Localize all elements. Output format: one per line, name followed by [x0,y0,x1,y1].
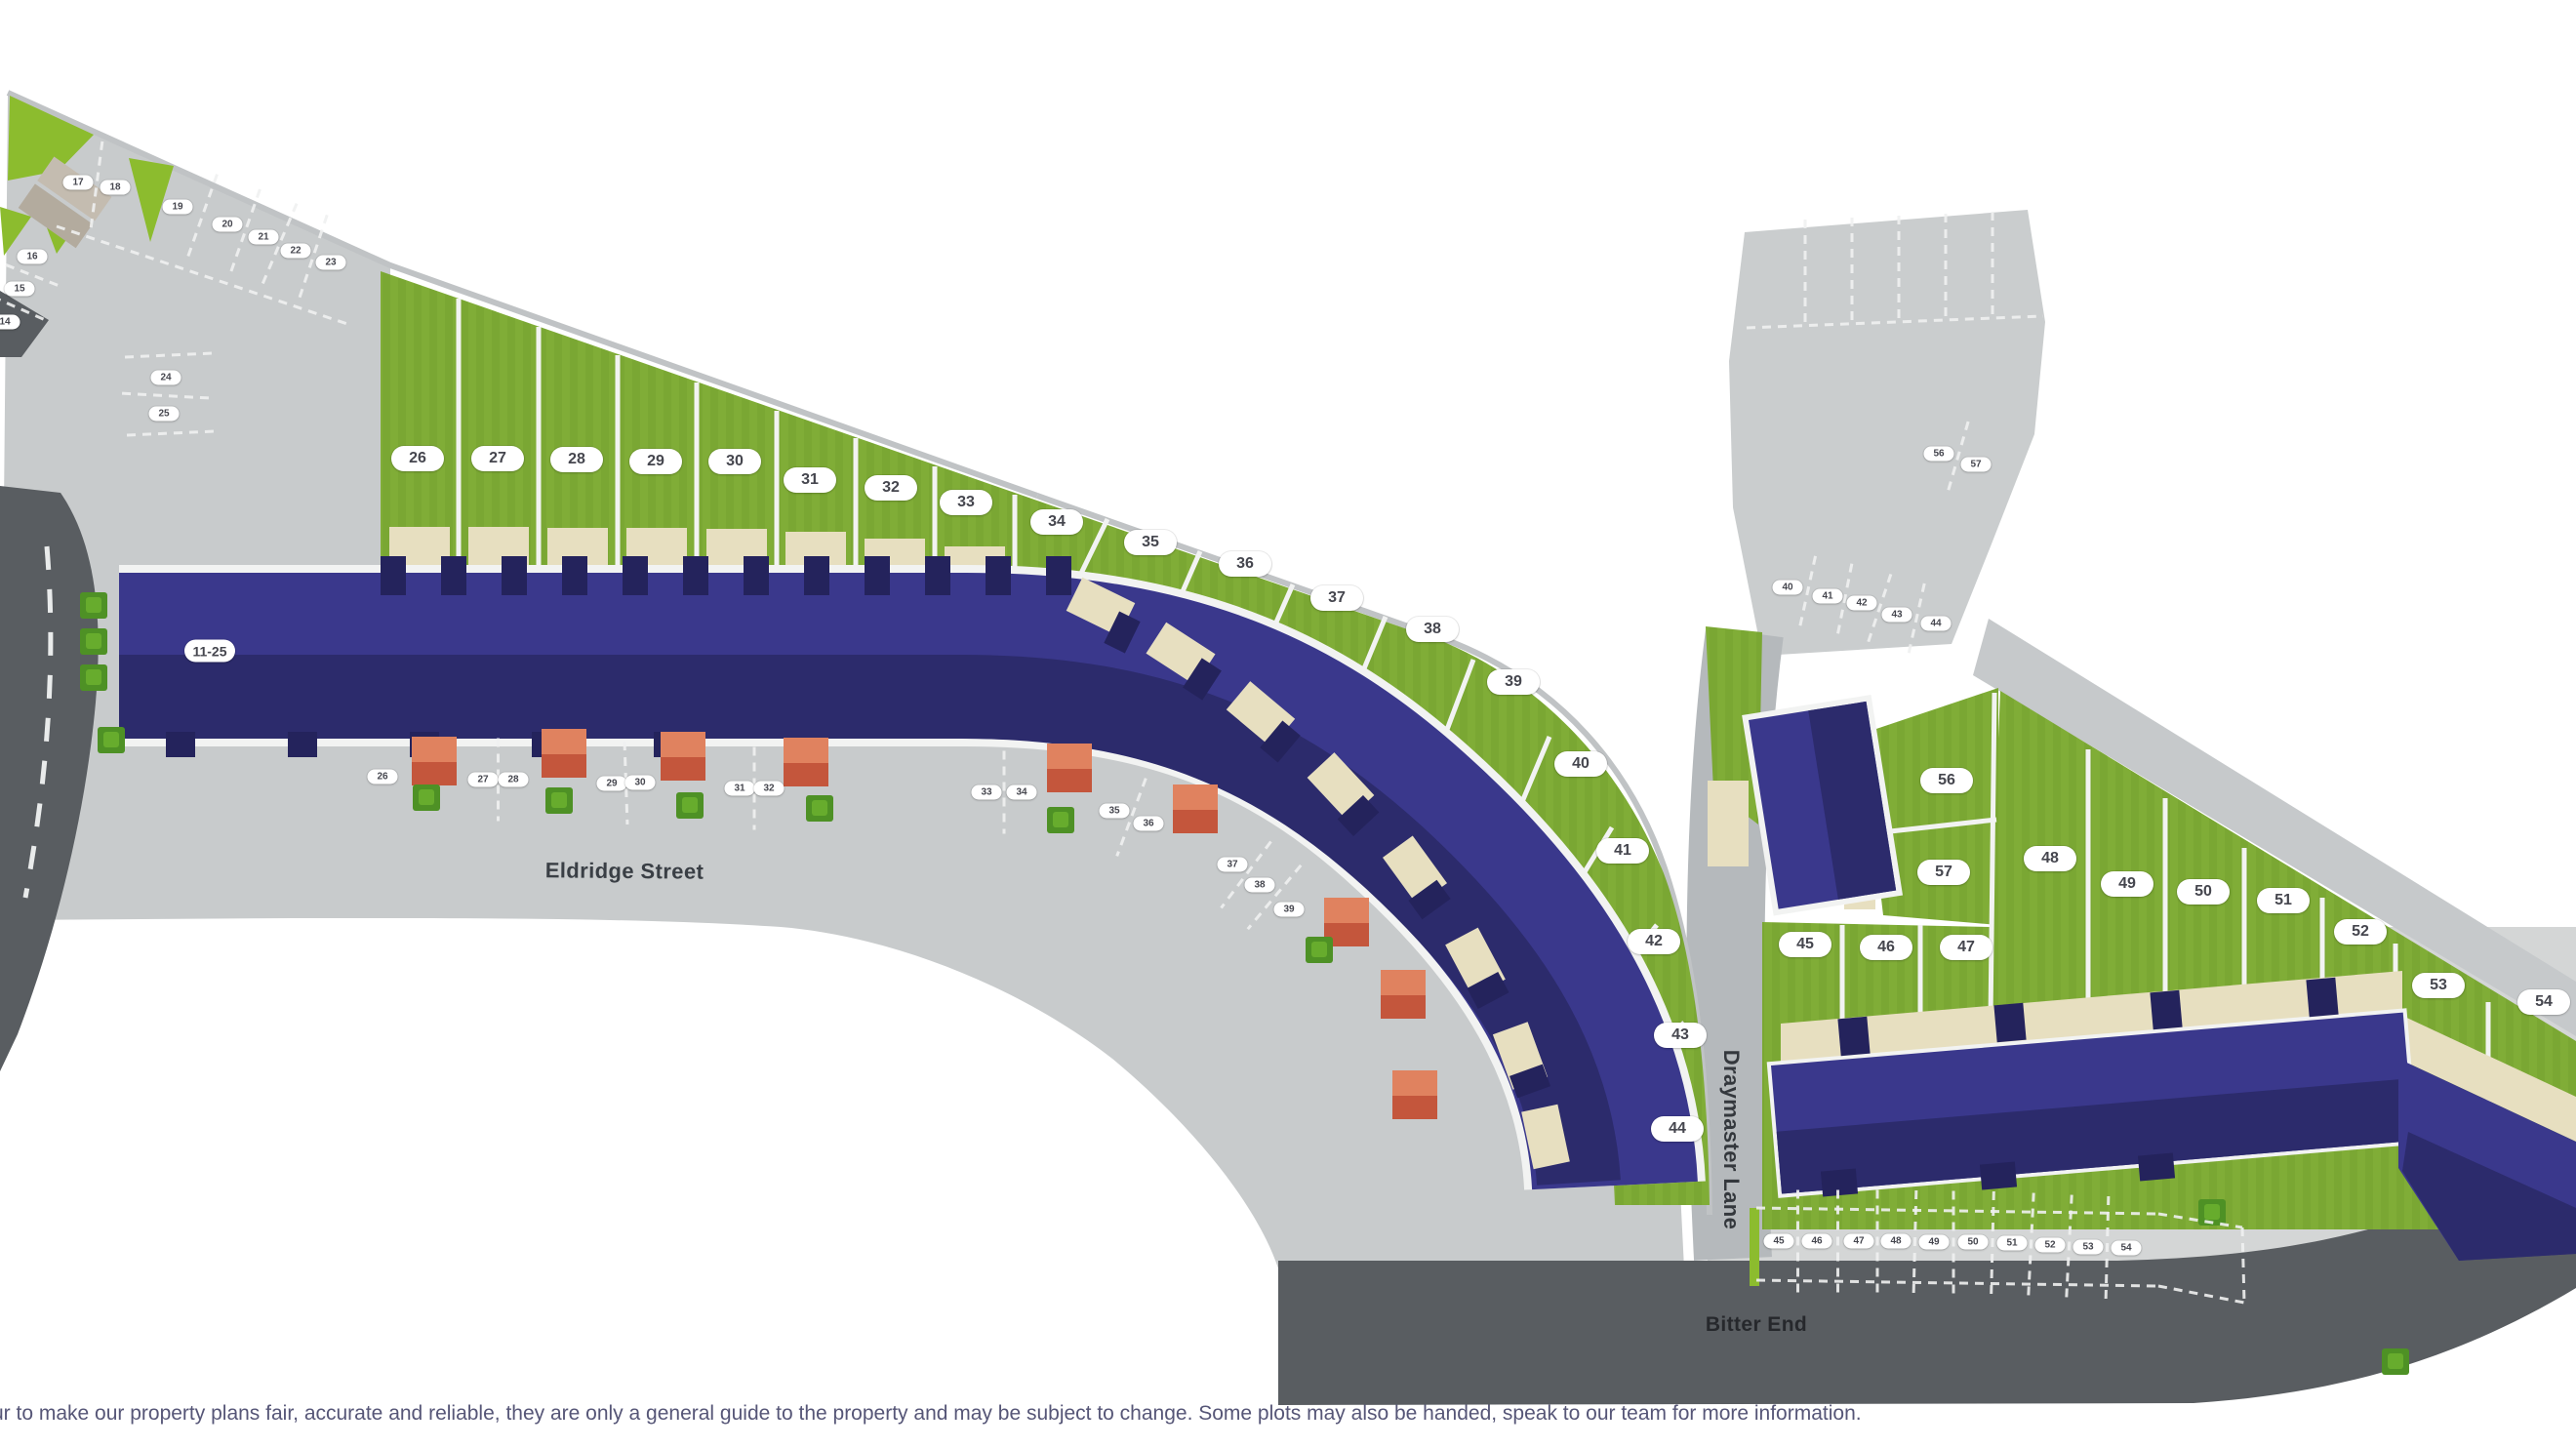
parking-space-marker-54[interactable]: 54 [2112,1241,2142,1256]
parking-space-marker-25[interactable]: 25 [149,407,180,422]
parking-space-marker-49[interactable]: 49 [1919,1235,1950,1250]
site-plan: 2627282930313233343536373839404142434445… [0,0,2576,1448]
plot-marker-35[interactable]: 35 [1124,530,1177,555]
plot-marker-41[interactable]: 41 [1596,838,1649,864]
parking-space-marker-30[interactable]: 30 [625,776,656,790]
parking-space-marker-43[interactable]: 43 [1882,608,1912,623]
parking-space-marker-56[interactable]: 56 [1924,447,1954,462]
parking-space-marker-57[interactable]: 57 [1961,458,1992,472]
parking-space-marker-39[interactable]: 39 [1274,903,1305,917]
plot-marker-30[interactable]: 30 [708,449,761,474]
plot-marker-53[interactable]: 53 [2412,973,2465,998]
plot-marker-29[interactable]: 29 [629,449,682,474]
plot-marker-33[interactable]: 33 [940,490,992,515]
plot-marker-34[interactable]: 34 [1030,509,1083,535]
parking-space-marker-45[interactable]: 45 [1764,1234,1794,1249]
parking-space-marker-28[interactable]: 28 [499,773,529,787]
parking-space-marker-51[interactable]: 51 [1997,1236,2028,1251]
plot-marker-44[interactable]: 44 [1651,1116,1704,1142]
plot-marker-46[interactable]: 46 [1860,935,1912,960]
parking-space-marker-48[interactable]: 48 [1881,1234,1912,1249]
plot-marker-39[interactable]: 39 [1487,669,1540,695]
parking-space-marker-18[interactable]: 18 [101,181,131,195]
parking-space-marker-16[interactable]: 16 [18,250,48,264]
parking-space-marker-34[interactable]: 34 [1007,785,1037,800]
plot-marker-48[interactable]: 48 [2024,846,2076,871]
plot-marker-42[interactable]: 42 [1628,929,1680,954]
street-label-draymaster: Draymaster Lane [1718,1050,1744,1230]
parking-space-marker-23[interactable]: 23 [316,256,346,270]
parking-space-marker-38[interactable]: 38 [1245,878,1275,893]
parking-space-marker-26[interactable]: 26 [368,770,398,784]
plot-marker-47[interactable]: 47 [1940,935,1992,960]
plot-marker-51[interactable]: 51 [2257,888,2310,913]
parking-space-marker-41[interactable]: 41 [1813,589,1843,604]
plot-marker-49[interactable]: 49 [2101,871,2153,897]
plot-marker-28[interactable]: 28 [550,447,603,472]
parking-space-marker-35[interactable]: 35 [1100,804,1130,819]
plot-marker-27[interactable]: 27 [471,446,524,471]
plot-marker-45[interactable]: 45 [1779,932,1831,957]
parking-space-marker-14[interactable]: 14 [0,315,20,330]
parking-space-marker-19[interactable]: 19 [163,200,193,215]
parking-space-marker-37[interactable]: 37 [1218,858,1248,872]
plot-marker-52[interactable]: 52 [2334,919,2387,945]
parking-space-marker-21[interactable]: 21 [249,230,279,245]
parking-space-marker-42[interactable]: 42 [1847,596,1877,611]
parking-space-marker-15[interactable]: 15 [5,282,35,297]
parking-space-marker-50[interactable]: 50 [1958,1235,1989,1250]
parking-space-marker-33[interactable]: 33 [972,785,1002,800]
plot-markers-layer: 2627282930313233343536373839404142434445… [0,0,2576,1448]
parking-space-marker-24[interactable]: 24 [151,371,181,385]
parking-space-marker-17[interactable]: 17 [63,176,94,190]
street-label-bitter-end: Bitter End [1706,1313,1807,1337]
parking-space-marker-46[interactable]: 46 [1802,1234,1832,1249]
parking-space-marker-44[interactable]: 44 [1921,617,1952,631]
plot-marker-43[interactable]: 43 [1654,1023,1707,1048]
disclaimer-text: ur to make our property plans fair, accu… [0,1402,1862,1426]
plot-marker-57[interactable]: 57 [1917,860,1970,885]
parking-space-marker-52[interactable]: 52 [2035,1238,2066,1253]
plot-marker-50[interactable]: 50 [2177,879,2230,905]
parking-space-marker-22[interactable]: 22 [281,244,311,259]
parking-space-marker-20[interactable]: 20 [213,218,243,232]
parking-space-marker-32[interactable]: 32 [754,782,785,796]
plot-marker-37[interactable]: 37 [1310,585,1363,611]
street-label-eldridge: Eldridge Street [545,858,704,884]
parking-space-marker-47[interactable]: 47 [1844,1234,1874,1249]
parking-space-marker-31[interactable]: 31 [725,782,755,796]
plot-marker-32[interactable]: 32 [865,475,917,501]
plot-marker-31[interactable]: 31 [784,467,836,493]
parking-space-marker-29[interactable]: 29 [597,777,627,791]
plot-marker-40[interactable]: 40 [1554,751,1607,777]
plot-marker-54[interactable]: 54 [2517,989,2570,1015]
building-marker-11-25[interactable]: 11-25 [184,640,235,663]
plot-marker-26[interactable]: 26 [391,446,444,471]
plot-marker-36[interactable]: 36 [1219,551,1271,577]
parking-space-marker-27[interactable]: 27 [468,773,499,787]
plot-marker-56[interactable]: 56 [1920,768,1973,793]
parking-space-marker-40[interactable]: 40 [1773,581,1803,595]
parking-space-marker-53[interactable]: 53 [2073,1240,2104,1255]
parking-space-marker-36[interactable]: 36 [1134,817,1164,831]
plot-marker-38[interactable]: 38 [1406,617,1459,642]
